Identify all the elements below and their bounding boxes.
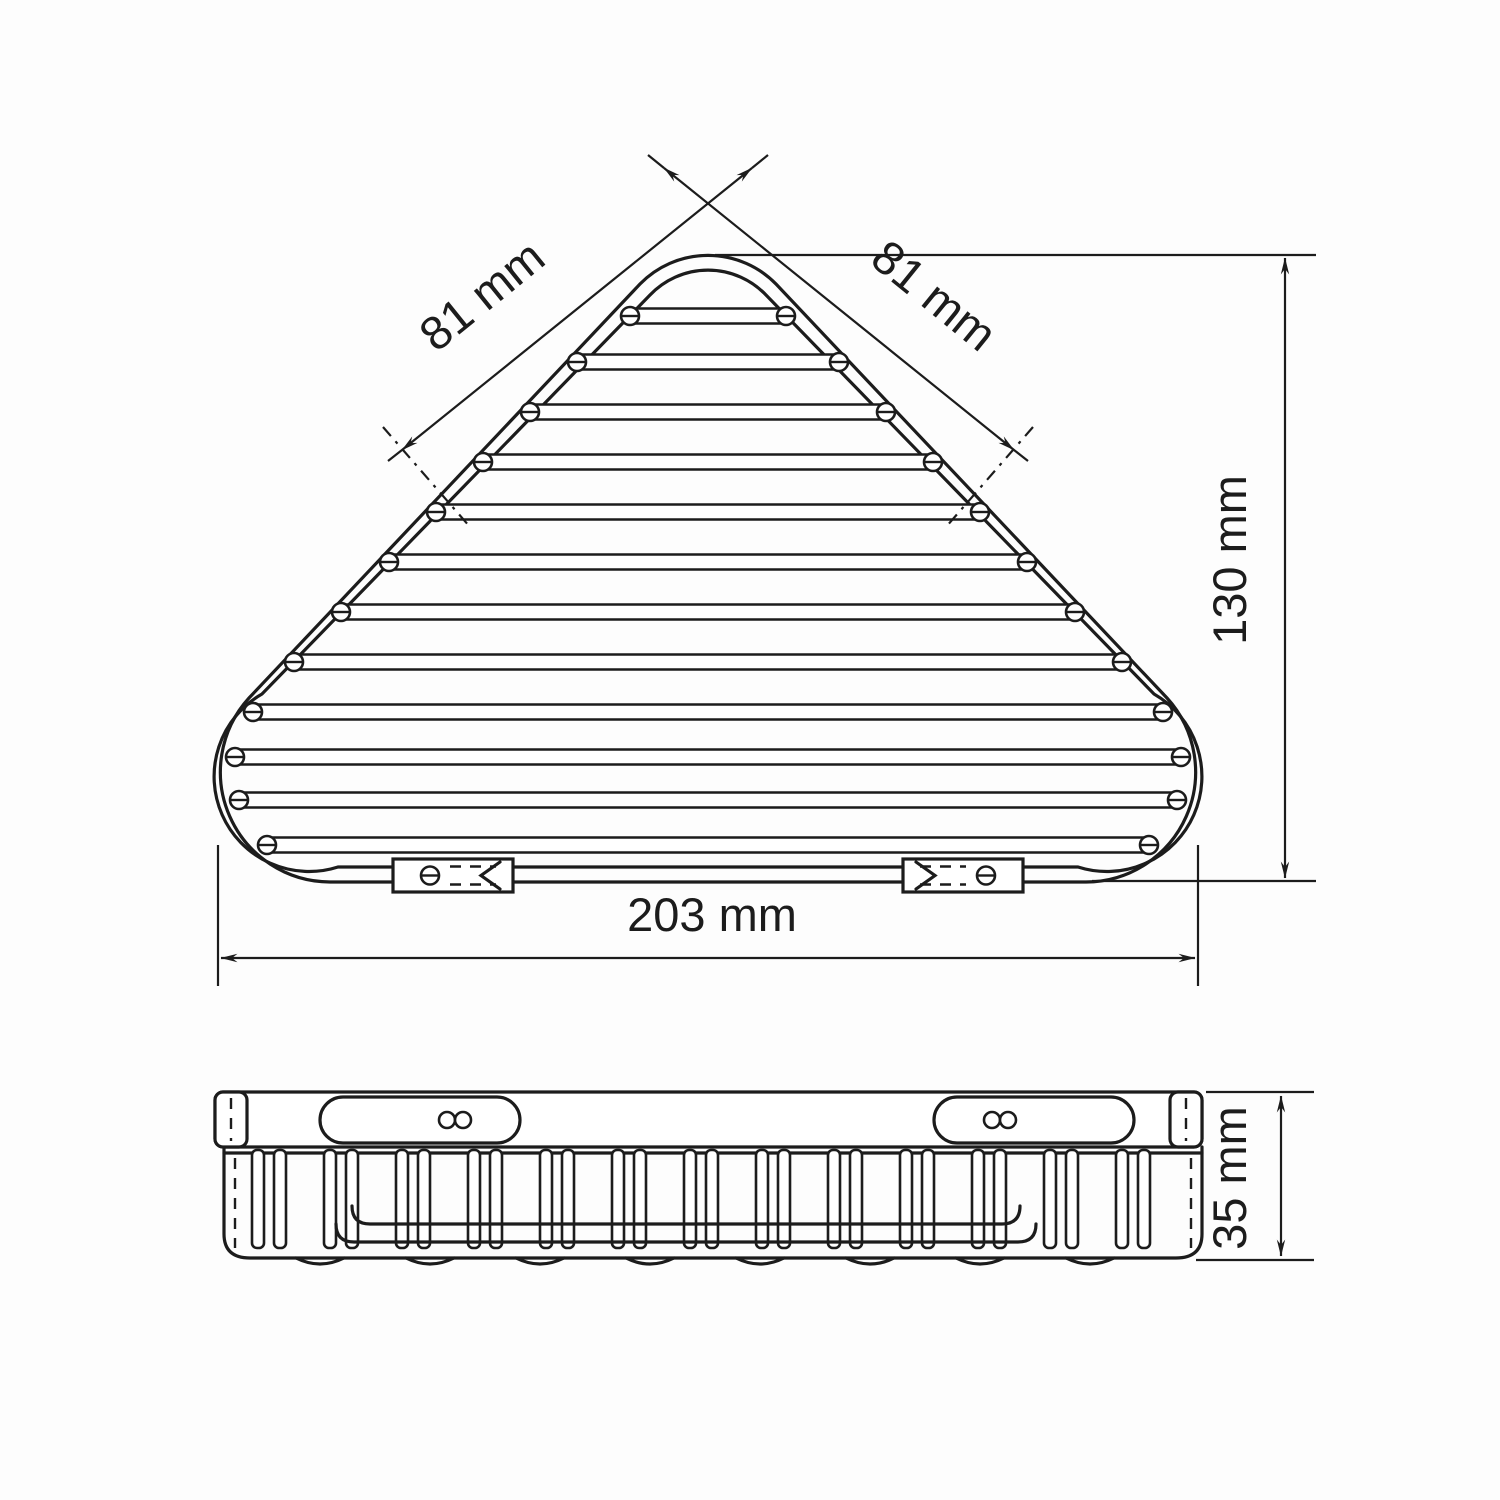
screw-icon (226, 748, 244, 766)
screw-icon (1113, 653, 1131, 671)
screw-icon (830, 353, 848, 371)
screw-icon (1172, 748, 1190, 766)
side-wires (252, 1150, 1150, 1248)
screw-icon (621, 307, 639, 325)
dim-label-81-left: 81 mm (409, 229, 554, 361)
mounting-plate-right (934, 1097, 1134, 1143)
screw-icon (244, 703, 262, 721)
screw-icon (380, 553, 398, 571)
wire (527, 405, 889, 420)
wire (338, 605, 1078, 620)
wire (232, 750, 1184, 765)
mounting-plate-left (320, 1097, 520, 1143)
side-view-dimensions: 35 mm (1196, 1092, 1314, 1260)
screw-icon (568, 353, 586, 371)
technical-drawing: 81 mm 81 mm 130 mm 203 mm (0, 0, 1500, 1500)
basket-wires (232, 309, 1184, 853)
screw-icon (777, 307, 795, 325)
wire (250, 705, 1166, 720)
screw-icon (421, 867, 439, 885)
screw-icon (285, 653, 303, 671)
screw-icon (230, 791, 248, 809)
drawing-page: 81 mm 81 mm 130 mm 203 mm (0, 0, 1500, 1500)
bracket-left (393, 859, 513, 892)
screw-icon (258, 836, 276, 854)
side-view (215, 1092, 1202, 1264)
wire (264, 838, 1152, 853)
screw-icon (1168, 791, 1186, 809)
wire (386, 555, 1030, 570)
wire (480, 455, 936, 470)
screw-icon (1066, 603, 1084, 621)
screw-icon (1018, 553, 1036, 571)
dim-label-130: 130 mm (1203, 475, 1256, 645)
screw-icon (1154, 703, 1172, 721)
screw-icon (427, 503, 445, 521)
screw-icon (924, 453, 942, 471)
screw-icon (332, 603, 350, 621)
dim-label-203: 203 mm (627, 888, 797, 941)
screw-icon (971, 503, 989, 521)
bracket-right (903, 859, 1023, 892)
dim-label-35: 35 mm (1203, 1106, 1256, 1250)
dim-label-81-right: 81 mm (862, 229, 1007, 361)
wire (236, 793, 1180, 808)
top-view (214, 255, 1202, 892)
wire (627, 309, 789, 324)
screw-icon (877, 403, 895, 421)
screw-icon (977, 867, 995, 885)
screw-icon (474, 453, 492, 471)
wire (433, 505, 983, 520)
screw-icon (521, 403, 539, 421)
screw-icon (1140, 836, 1158, 854)
wire (574, 355, 842, 370)
wire (291, 655, 1125, 670)
